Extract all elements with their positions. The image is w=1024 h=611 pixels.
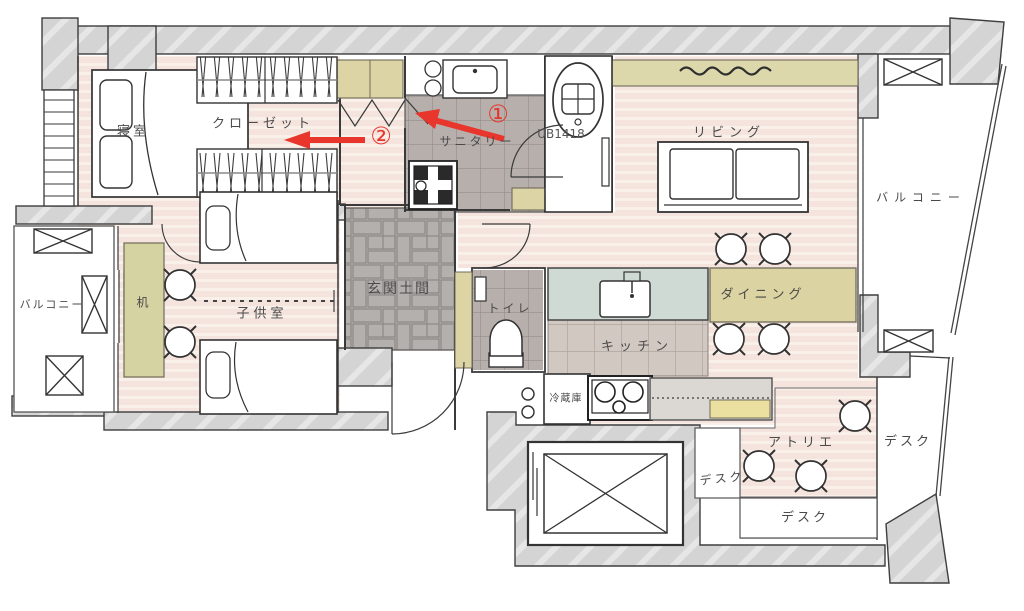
wall-top (44, 26, 950, 54)
bath-counter (602, 138, 609, 186)
pillow (206, 206, 230, 250)
label-desk-bottom: デスク (781, 507, 829, 526)
entrance-door (392, 362, 464, 434)
toilet-bowl (490, 320, 522, 356)
room-label-closet: クローゼット (212, 113, 314, 132)
vestibule-floor (340, 98, 405, 208)
room-label-kitchen: キッチン (601, 336, 673, 355)
label-desk-right: デスク (884, 431, 932, 450)
living-shelf (612, 60, 858, 86)
toilet-washlet-panel (475, 277, 486, 301)
step-marker-1: ① (487, 100, 509, 128)
kitchen-sink (600, 281, 650, 317)
label-bath-unit: UB1418 (537, 127, 585, 141)
wall-bottom-right (886, 494, 949, 583)
room-label-dining: ダイニング (720, 284, 805, 303)
west-window (44, 90, 74, 206)
wall-left-column (42, 18, 78, 90)
x-box-right-mid (884, 330, 933, 352)
x-box-balcony-1 (34, 229, 92, 253)
wall-living-column (858, 54, 878, 118)
washing-machine (409, 161, 457, 209)
wall-top-right (950, 18, 1004, 84)
room-label-bedroom: 寝室 (117, 121, 149, 140)
toilet-side-cabinet (455, 272, 472, 368)
wall-entrance-side (332, 348, 392, 386)
kitchen-faucet (624, 272, 640, 281)
step-marker-2: ② (370, 122, 392, 150)
balcony-railing (936, 64, 1006, 496)
room-label-sanitary: サニタリー (439, 133, 514, 150)
elevator-shaft (528, 442, 683, 545)
room-label-balcony-right: バルコニー (876, 189, 966, 206)
label-study-desk: 机 (136, 294, 151, 311)
pillow (206, 352, 230, 398)
corridor-floor (458, 212, 548, 268)
x-box-balcony-2 (82, 276, 107, 333)
room-label-kids-room: 子供室 (236, 303, 287, 322)
stove (588, 376, 652, 420)
x-box-balcony-3 (46, 356, 83, 395)
laundry-basket-1 (425, 61, 441, 77)
room-label-toilet: トイレ (487, 300, 532, 317)
room-label-balcony-left: バルコニー (20, 296, 85, 312)
kitchen-yellow-cabinet (710, 400, 770, 418)
x-box-top-right (884, 59, 942, 85)
wall-bedroom-south-a (16, 206, 152, 224)
room-label-entrance-doma: 玄関土間 (367, 278, 431, 298)
label-fridge: 冷蔵庫 (550, 390, 583, 405)
laundry-basket-2 (425, 80, 441, 96)
room-label-atelier: アトリエ (768, 432, 836, 451)
pillow (100, 136, 132, 188)
floor-plan: 寝室 クローゼット サニタリー UB1418 リビング バルコニー ダイニング … (0, 0, 1024, 611)
room-label-living: リビング (693, 122, 765, 141)
